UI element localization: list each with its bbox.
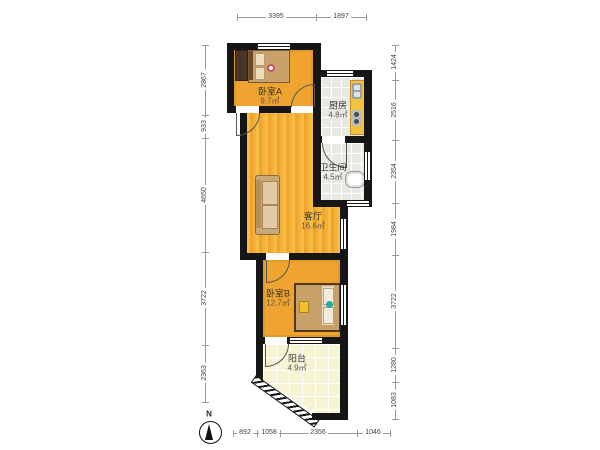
bed-a-pillow [255,53,265,66]
dimension-label: 2356 [308,429,328,437]
sink-basin [354,85,360,90]
dimension-label: 1083 [391,390,399,410]
dim-tick [392,419,399,420]
dimension-label: 1897 [331,13,351,21]
dim-tick [390,430,391,437]
dim-tick [357,430,358,437]
dim-tick [202,115,209,116]
burner [354,119,359,124]
dimension-label: 2354 [391,161,399,181]
window [364,152,372,180]
decor-dot-teal [326,301,333,308]
window [290,337,322,344]
dim-tick [392,203,399,204]
dim-tick [392,45,399,46]
wall [312,413,348,420]
dim-tick [392,80,399,81]
dimension-label: 2363 [201,363,209,383]
sink [352,83,362,99]
door-opening [266,253,289,260]
dim-tick [392,382,399,383]
dim-tick [202,252,209,253]
sink-basin [354,92,360,97]
sofa [255,175,280,235]
bed-b-pillow [323,307,334,324]
floor-plan: 卧室A 9.7㎡ 厨房 4.8㎡ 卫生间 4.5㎡ 客厅 16.6㎡ 卧室B 1… [0,0,600,450]
dim-tick [257,430,258,437]
sofa-back [256,180,261,228]
dimension-label: 1280 [391,355,399,375]
bathtub [345,171,365,188]
dim-tick [316,14,317,21]
dim-tick [392,348,399,349]
bed-b [294,283,341,332]
bed-a-pillow [255,67,265,80]
sofa-cushion [262,181,278,205]
wall [227,43,234,113]
dimension-label: 933 [201,118,209,134]
dim-tick [280,430,281,437]
dimension-label: 3395 [266,13,286,21]
dim-tick [202,138,209,139]
dimension-label: 4650 [201,185,209,205]
dimension-label: 3722 [201,288,209,308]
dim-tick [202,345,209,346]
dim-tick [237,14,238,21]
dim-tick [202,402,209,403]
wall [256,253,263,343]
dimension-label: 1046 [363,429,383,437]
door-opening [291,106,313,113]
door-opening [265,337,287,344]
dim-tick [366,14,367,21]
dimension-line-left [205,45,206,402]
dim-tick [392,255,399,256]
flower-decor [267,64,275,72]
wardrobe [235,50,248,81]
dimension-label: 3722 [391,291,399,311]
window [258,43,290,50]
dimension-label: 892 [237,429,253,437]
dim-tick [233,430,234,437]
window [347,200,369,207]
dim-tick [392,140,399,141]
dimension-label: 2867 [201,70,209,90]
dimension-label: 1984 [391,219,399,239]
door-opening [322,136,345,143]
dimension-label: 1424 [391,52,399,72]
dimension-label: 1058 [259,429,279,437]
north-label: N [206,410,212,419]
bed-a [248,50,290,83]
window [327,70,353,77]
burner [354,112,359,117]
door-opening [236,106,259,113]
north-arrow-icon [205,424,213,440]
sofa-cushion [262,205,278,229]
stove [352,110,362,126]
wall [313,43,321,207]
dim-tick [202,45,209,46]
window [340,219,348,249]
bed-a-headboard [249,51,253,80]
decor-tray [299,301,309,313]
window [340,285,348,325]
dimension-label: 2516 [391,100,399,120]
